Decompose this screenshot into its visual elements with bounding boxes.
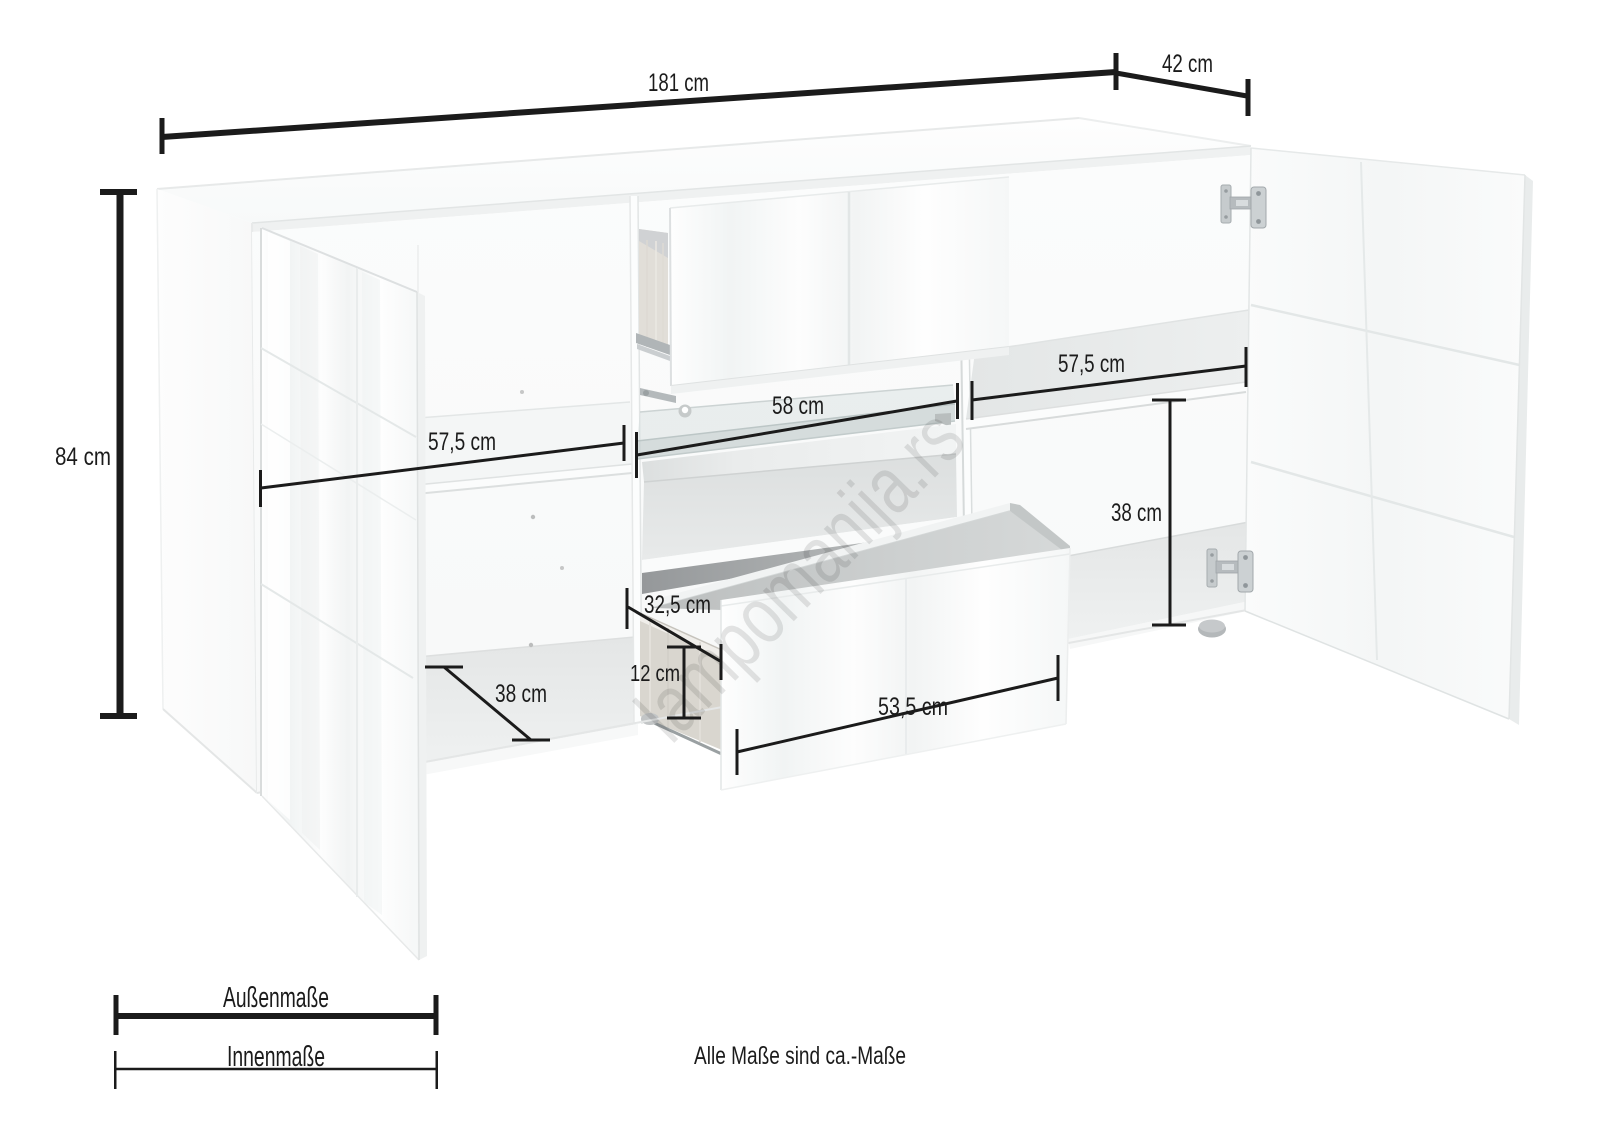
svg-text:53,5 cm: 53,5 cm — [878, 693, 948, 721]
svg-text:12 cm: 12 cm — [630, 660, 680, 686]
svg-text:57,5 cm: 57,5 cm — [428, 428, 496, 456]
svg-text:38 cm: 38 cm — [495, 680, 547, 708]
svg-text:Außenmaße: Außenmaße — [223, 982, 329, 1014]
svg-text:Alle Maße sind ca.-Maße: Alle Maße sind ca.-Maße — [694, 1042, 906, 1070]
svg-text:58 cm: 58 cm — [772, 392, 824, 420]
svg-text:42 cm: 42 cm — [1162, 50, 1213, 78]
svg-text:84 cm: 84 cm — [55, 443, 111, 471]
svg-text:181 cm: 181 cm — [648, 69, 709, 97]
svg-text:32,5 cm: 32,5 cm — [644, 591, 711, 619]
svg-text:38 cm: 38 cm — [1111, 499, 1162, 527]
svg-text:57,5 cm: 57,5 cm — [1058, 350, 1125, 378]
